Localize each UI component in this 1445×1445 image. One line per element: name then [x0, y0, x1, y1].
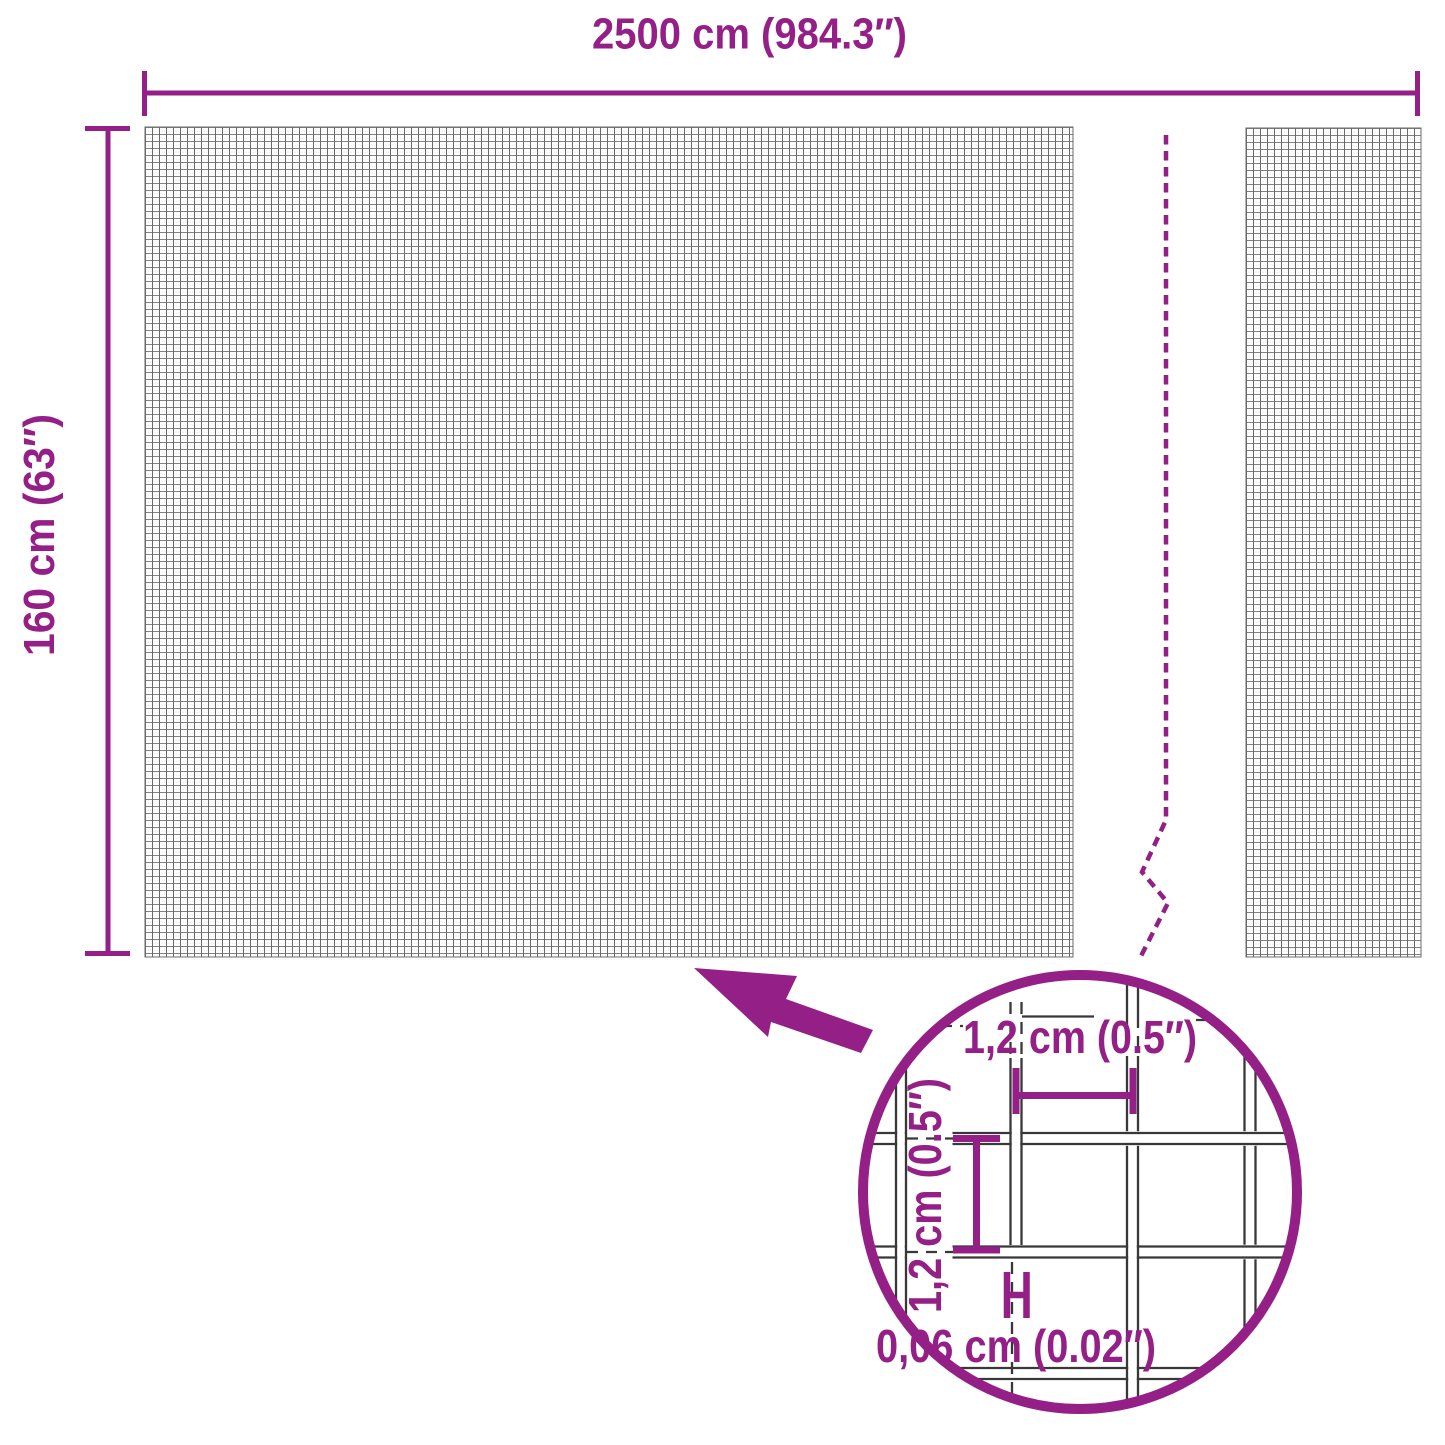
svg-text:160 cm (63″): 160 cm (63″)	[15, 414, 64, 656]
svg-text:0,06 cm (0.02″): 0,06 cm (0.02″)	[876, 1320, 1156, 1372]
svg-text:1,2 cm (0.5″): 1,2 cm (0.5″)	[963, 1011, 1197, 1063]
svg-text:1,2 cm (0.5″): 1,2 cm (0.5″)	[899, 1078, 951, 1313]
svg-text:2500 cm (984.3″): 2500 cm (984.3″)	[592, 10, 907, 59]
